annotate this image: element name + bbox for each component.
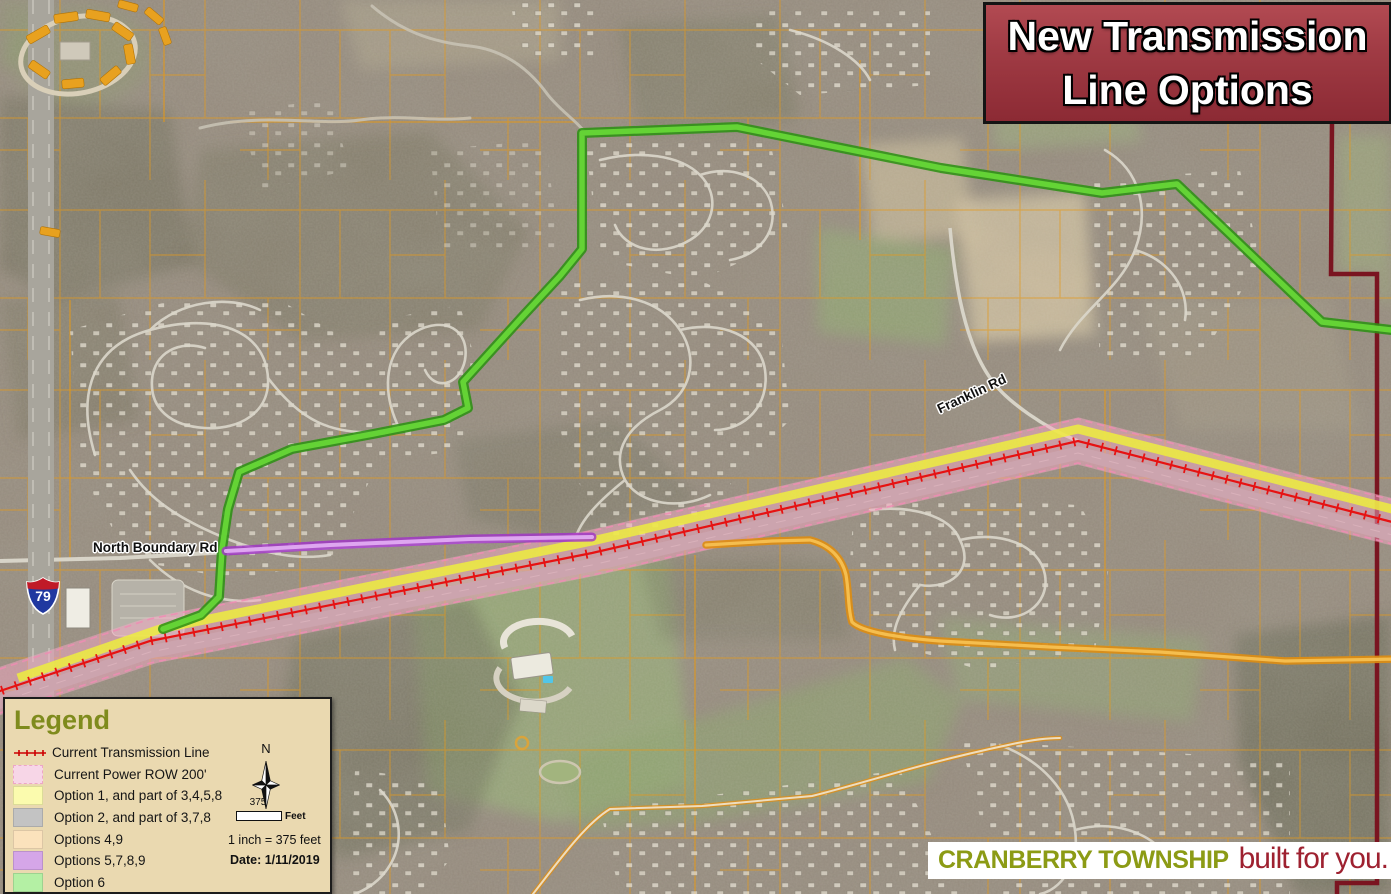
pink-swatch	[13, 765, 43, 784]
tan-swatch	[13, 830, 43, 849]
map-title-line2: Line Options	[1062, 63, 1313, 117]
township-tagline: built for you.	[1239, 842, 1388, 876]
legend-label: Current Power ROW 200'	[54, 767, 207, 782]
interstate-79-number: 79	[26, 588, 60, 604]
legend-item-option6: Option 6	[13, 872, 330, 894]
north-label: N	[246, 741, 286, 756]
map-date: Date: 1/11/2019	[230, 853, 320, 867]
legend-label: Options 4,9	[54, 832, 123, 847]
map-title-line1: New Transmission	[1007, 9, 1367, 63]
map-title-box: New Transmission Line Options	[983, 2, 1391, 124]
purple-swatch	[13, 851, 43, 870]
gray-swatch	[13, 808, 43, 827]
scale-value: 375	[236, 797, 280, 808]
legend-label: Option 1, and part of 3,4,5,8	[54, 788, 222, 803]
legend-label: Options 5,7,8,9	[54, 853, 146, 868]
transmission-line-options-map: 79 North Boundary Rd Franklin Rd New Tra…	[0, 0, 1391, 894]
legend-label: Current Transmission Line	[52, 745, 210, 760]
scale-bar	[236, 811, 282, 821]
scale-unit: Feet	[285, 811, 306, 822]
yellow-swatch	[13, 786, 43, 805]
township-brand-bar: CRANBERRY TOWNSHIP built for you.	[928, 842, 1391, 879]
red-tick-line-symbol	[13, 745, 47, 761]
legend-title: Legend	[14, 705, 330, 736]
legend-label: Option 2, and part of 3,7,8	[54, 810, 211, 825]
township-name: CRANBERRY TOWNSHIP	[938, 846, 1229, 875]
scale-ratio-text: 1 inch = 375 feet	[228, 833, 321, 847]
legend-label: Option 6	[54, 875, 105, 890]
green-swatch	[13, 873, 43, 892]
road-label-north-boundary: North Boundary Rd	[93, 540, 218, 555]
